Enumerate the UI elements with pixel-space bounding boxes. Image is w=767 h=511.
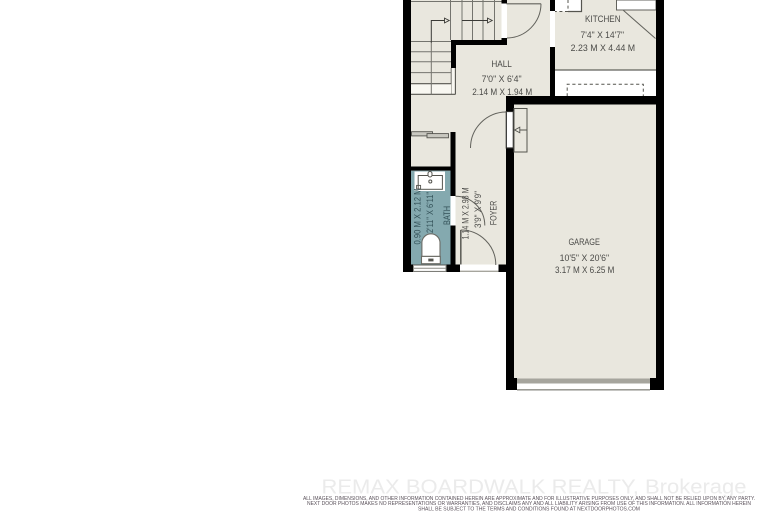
svg-text:2.14 M X 1.94 M: 2.14 M X 1.94 M <box>472 87 532 97</box>
svg-text:0.90 M X 2.12 M: 0.90 M X 2.12 M <box>412 189 422 245</box>
svg-text:2.23 M X 4.44 M: 2.23 M X 4.44 M <box>571 43 636 53</box>
svg-text:SHALL BE SUBJECT TO THE TERMS: SHALL BE SUBJECT TO THE TERMS AND CONDIT… <box>418 507 640 511</box>
svg-text:GARAGE: GARAGE <box>568 237 600 247</box>
svg-text:7'4" X 14'7": 7'4" X 14'7" <box>581 30 625 40</box>
svg-text:KITCHEN: KITCHEN <box>585 14 621 24</box>
svg-text:FOYER: FOYER <box>489 200 499 225</box>
svg-text:HALL: HALL <box>491 59 512 69</box>
svg-text:3.17 M X 6.25 M: 3.17 M X 6.25 M <box>555 265 615 275</box>
svg-text:7'0" X 6'4": 7'0" X 6'4" <box>482 74 522 84</box>
svg-text:3'9" X 9'9": 3'9" X 9'9" <box>473 191 483 228</box>
svg-text:10'5" X 20'6": 10'5" X 20'6" <box>560 253 610 263</box>
svg-text:1.14 M X 2.98 M: 1.14 M X 2.98 M <box>460 188 470 240</box>
svg-text:2'11" X 6'11": 2'11" X 6'11" <box>425 192 435 233</box>
svg-text:BATH: BATH <box>442 206 452 225</box>
